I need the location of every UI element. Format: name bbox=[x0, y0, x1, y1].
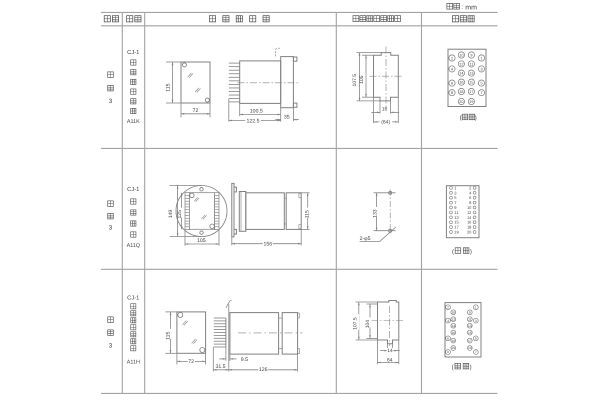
svg-text:7: 7 bbox=[475, 350, 477, 354]
svg-text:104: 104 bbox=[365, 320, 371, 329]
svg-text:12: 12 bbox=[451, 317, 455, 321]
svg-text:122.5: 122.5 bbox=[247, 118, 260, 124]
svg-text:19: 19 bbox=[468, 346, 472, 350]
svg-text:A11Q: A11Q bbox=[127, 243, 140, 249]
svg-text:125: 125 bbox=[177, 210, 183, 219]
svg-text:17: 17 bbox=[468, 339, 472, 343]
svg-text:115: 115 bbox=[165, 83, 171, 91]
svg-text:105: 105 bbox=[359, 75, 365, 84]
svg-text:115: 115 bbox=[166, 332, 172, 340]
svg-text:6: 6 bbox=[451, 81, 453, 85]
svg-text:72: 72 bbox=[193, 108, 199, 114]
svg-text:16: 16 bbox=[382, 107, 388, 113]
svg-text:133: 133 bbox=[372, 209, 378, 218]
svg-text:9: 9 bbox=[469, 311, 471, 315]
svg-text:11: 11 bbox=[468, 317, 472, 321]
svg-text:(: ( bbox=[460, 115, 462, 122]
svg-text:(: ( bbox=[452, 248, 454, 255]
svg-text:17: 17 bbox=[469, 90, 473, 94]
svg-text:3: 3 bbox=[109, 343, 113, 350]
svg-text:100.5: 100.5 bbox=[250, 108, 263, 114]
svg-text:A11K: A11K bbox=[127, 119, 140, 125]
svg-text:): ) bbox=[470, 364, 472, 371]
svg-text:13: 13 bbox=[469, 71, 473, 75]
svg-text:15: 15 bbox=[468, 331, 472, 335]
svg-text:107.5: 107.5 bbox=[352, 74, 358, 87]
svg-text:A11H: A11H bbox=[127, 360, 140, 366]
svg-text:16: 16 bbox=[459, 80, 463, 84]
svg-text:14: 14 bbox=[459, 71, 463, 75]
svg-text:3: 3 bbox=[480, 67, 482, 71]
svg-text:19: 19 bbox=[454, 230, 459, 235]
svg-text:1: 1 bbox=[480, 56, 482, 60]
svg-text:5: 5 bbox=[480, 81, 482, 85]
svg-text:115: 115 bbox=[304, 210, 310, 218]
svg-text:72: 72 bbox=[188, 359, 194, 365]
svg-text:19: 19 bbox=[469, 100, 473, 104]
svg-text:35: 35 bbox=[284, 114, 290, 120]
svg-text:2-φ5: 2-φ5 bbox=[360, 236, 371, 242]
svg-text:10: 10 bbox=[459, 53, 463, 57]
svg-text:105: 105 bbox=[197, 238, 206, 244]
svg-text:1: 1 bbox=[475, 305, 477, 309]
svg-text:(64): (64) bbox=[381, 120, 390, 126]
svg-text:(: ( bbox=[452, 364, 454, 371]
svg-text:13: 13 bbox=[468, 324, 472, 328]
svg-text:CJ-1: CJ-1 bbox=[127, 186, 139, 193]
svg-text:18: 18 bbox=[451, 339, 455, 343]
svg-text:8: 8 bbox=[451, 91, 453, 95]
svg-text:18: 18 bbox=[459, 90, 463, 94]
svg-text:20: 20 bbox=[467, 230, 472, 235]
svg-text:CJ-1: CJ-1 bbox=[127, 49, 139, 56]
svg-text:8: 8 bbox=[447, 350, 449, 354]
svg-text:16: 16 bbox=[451, 331, 455, 335]
svg-text:mm: mm bbox=[465, 4, 477, 11]
svg-text:2: 2 bbox=[451, 56, 453, 60]
svg-text:4: 4 bbox=[451, 67, 453, 71]
svg-text:14: 14 bbox=[387, 348, 393, 354]
svg-text:3: 3 bbox=[475, 319, 477, 323]
svg-text:9.5: 9.5 bbox=[241, 357, 248, 363]
svg-text:126: 126 bbox=[259, 367, 268, 373]
svg-text:7: 7 bbox=[480, 91, 482, 95]
svg-text:3: 3 bbox=[109, 225, 113, 232]
svg-text:CJ-1: CJ-1 bbox=[127, 295, 139, 302]
svg-text:15: 15 bbox=[469, 80, 473, 84]
svg-text:6: 6 bbox=[447, 337, 449, 341]
svg-text:11: 11 bbox=[469, 62, 473, 66]
svg-text:4: 4 bbox=[447, 319, 449, 323]
svg-text:107.5: 107.5 bbox=[352, 317, 358, 330]
svg-text:2: 2 bbox=[447, 305, 449, 309]
svg-text:10: 10 bbox=[451, 311, 455, 315]
svg-text:156: 156 bbox=[263, 242, 272, 248]
svg-text:20: 20 bbox=[451, 346, 455, 350]
svg-text:149: 149 bbox=[168, 210, 174, 219]
svg-text:): ) bbox=[475, 115, 477, 122]
svg-text:31.5: 31.5 bbox=[215, 364, 225, 370]
svg-text:64: 64 bbox=[387, 357, 393, 363]
svg-text:): ) bbox=[470, 248, 472, 255]
svg-text:14: 14 bbox=[451, 324, 455, 328]
svg-text:5: 5 bbox=[475, 337, 477, 341]
svg-text:20: 20 bbox=[459, 100, 463, 104]
svg-text:9: 9 bbox=[470, 53, 472, 57]
svg-text:12: 12 bbox=[459, 62, 463, 66]
svg-text::: : bbox=[461, 4, 463, 11]
svg-text:3: 3 bbox=[109, 98, 113, 105]
